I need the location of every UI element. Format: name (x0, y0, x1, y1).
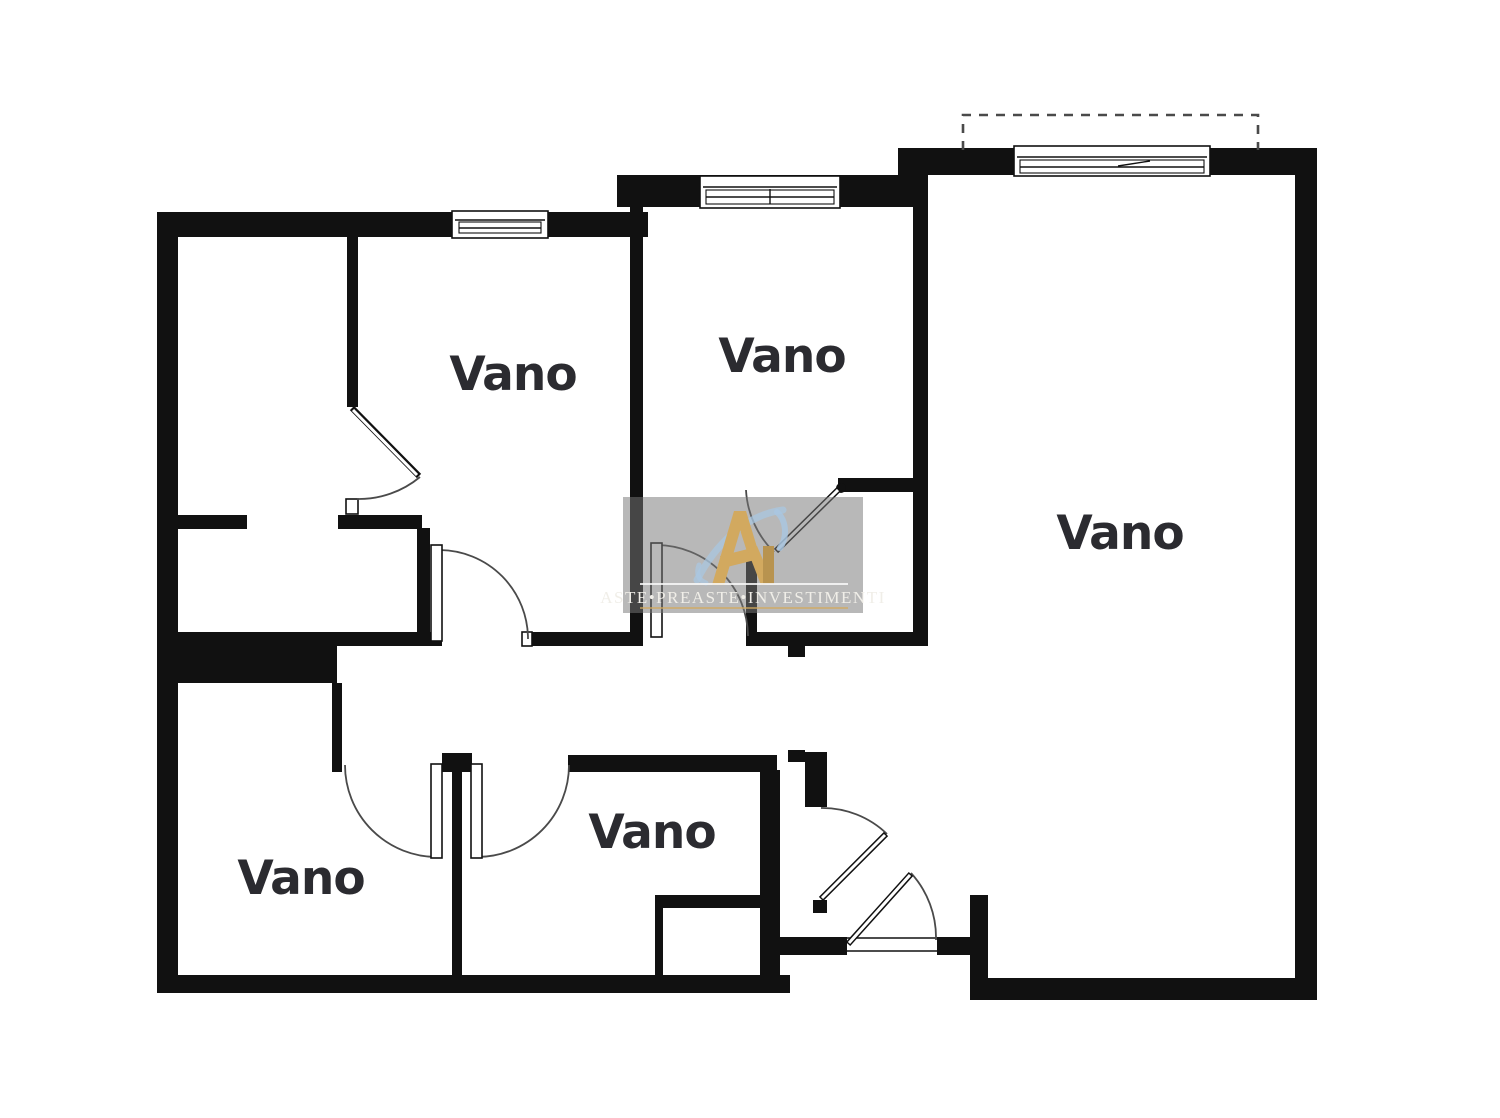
wall-bottom-main (157, 975, 790, 993)
wall-notch-upper (788, 646, 805, 657)
wall-entry-inner-jamb (813, 900, 827, 913)
wall-entry-left (760, 770, 780, 993)
wall-right-outer (1295, 148, 1317, 1000)
wall-bottom-divider (452, 772, 462, 978)
door-c-arc (440, 550, 528, 639)
wall-corridor-top-3 (757, 632, 928, 646)
window-symbol-right (1014, 146, 1210, 176)
wall-entry-right (970, 895, 988, 1000)
window-symbol-left (452, 211, 548, 238)
wall-bottom-right (970, 978, 1317, 1000)
wall-bottomroom-top (568, 755, 777, 772)
watermark: ASTE•PREASTE•INVESTIMENTI (600, 497, 886, 613)
door-f-arc (477, 765, 569, 857)
room-label-5: Vano (588, 805, 715, 860)
wall-entry-bottom-left (777, 937, 847, 955)
room-label-4: Vano (237, 851, 364, 906)
wall-top-left (157, 212, 648, 237)
balcony-dashed-outline (963, 115, 1258, 150)
door-a-jamb (346, 499, 358, 514)
wall-shaft-left (655, 895, 663, 978)
watermark-monogram-accent (763, 546, 774, 584)
wall-inner-h2 (338, 515, 422, 529)
room-label-1: Vano (449, 347, 576, 402)
room-label-2: Vano (718, 329, 845, 384)
wall-room-divider-2 (913, 148, 928, 646)
floor-plan: Vano Vano Vano Vano Vano ASTE•PREASTE•IN… (0, 0, 1500, 1118)
wall-stub (838, 478, 920, 492)
wall-notch-lower (788, 750, 805, 762)
wall-entry-inner-top (805, 752, 827, 807)
entry-inner-door-arc (821, 808, 887, 834)
wall-between-doors (442, 753, 472, 772)
wall-corridor-top-2 (532, 632, 643, 646)
window-symbol-middle (700, 176, 840, 208)
room-label-3: Vano (1056, 506, 1183, 561)
room-labels: Vano Vano Vano Vano Vano (237, 329, 1183, 906)
wall-closet-divider-top (347, 237, 358, 407)
wall-corridor-top-1 (178, 632, 442, 646)
door-e-leaf (431, 764, 442, 858)
floor-plan-svg: Vano Vano Vano Vano Vano ASTE•PREASTE•IN… (0, 0, 1500, 1118)
wall-inner-v1 (417, 528, 430, 646)
wall-inner-h1 (173, 515, 247, 529)
wall-left-outer (157, 212, 178, 993)
door-a-arc (357, 477, 420, 499)
door-f-leaf (471, 764, 482, 858)
wall-thick-band (157, 645, 337, 683)
door-c-leaf (431, 545, 442, 641)
door-e-arc (345, 765, 437, 857)
wall-shaft-top (655, 895, 770, 908)
wall-inner-v2 (332, 683, 342, 772)
entrance-door-arc (911, 873, 936, 940)
watermark-text: ASTE•PREASTE•INVESTIMENTI (600, 588, 886, 607)
